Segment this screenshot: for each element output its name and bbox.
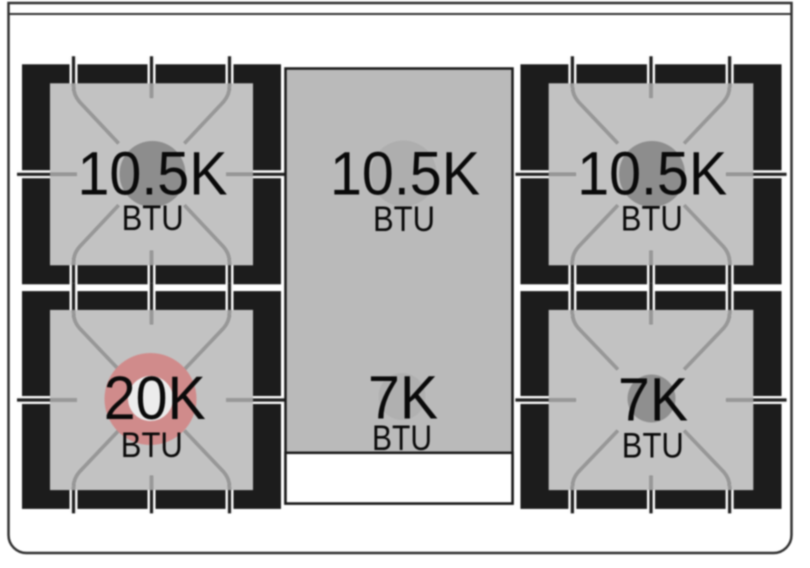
svg-text:BTU: BTU xyxy=(373,200,435,239)
svg-text:20K: 20K xyxy=(104,364,206,432)
svg-text:10.5K: 10.5K xyxy=(78,139,228,207)
svg-text:7K: 7K xyxy=(618,366,688,434)
svg-text:10.5K: 10.5K xyxy=(577,139,727,207)
svg-text:BTU: BTU xyxy=(621,199,683,238)
svg-text:BTU: BTU xyxy=(122,199,184,238)
svg-text:10.5K: 10.5K xyxy=(330,139,480,207)
svg-text:BTU: BTU xyxy=(121,426,183,465)
svg-text:BTU: BTU xyxy=(372,419,432,458)
svg-text:BTU: BTU xyxy=(622,426,684,465)
